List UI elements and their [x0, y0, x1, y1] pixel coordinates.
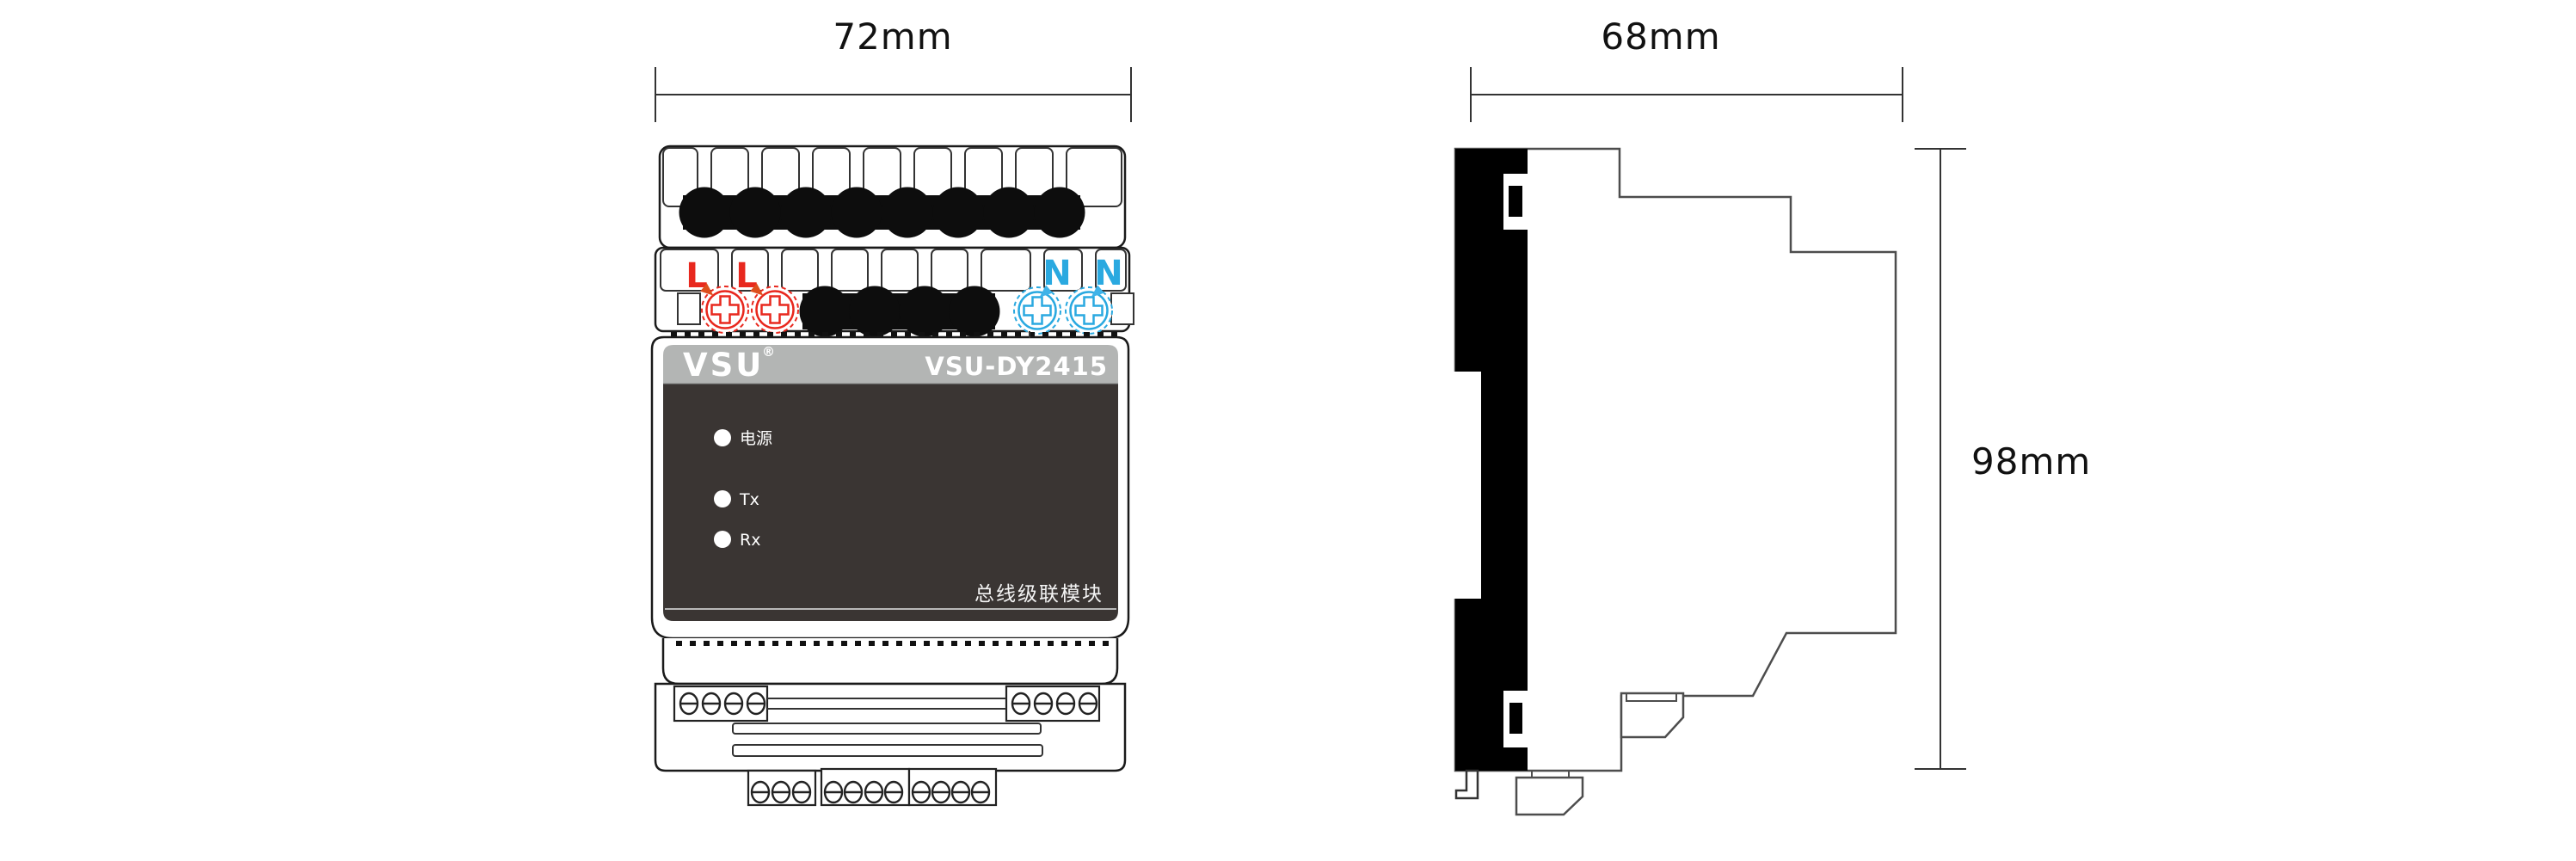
clip-latch-top-icon — [1509, 186, 1522, 217]
terminal-contact — [781, 188, 832, 238]
front-view: 72mm — [652, 15, 1134, 805]
power-led-icon — [714, 429, 731, 446]
side-view: 68mm 98mm — [1450, 15, 2091, 815]
din-rail-notch — [1450, 372, 1481, 599]
terminal-contact — [730, 188, 781, 238]
terminal-contact — [1035, 188, 1085, 238]
front-width-label: 72mm — [833, 15, 952, 58]
panel-caption: 总线级联模块 — [974, 583, 1104, 606]
slot-screw-icon — [793, 782, 810, 803]
power-led-label: 电源 — [740, 429, 772, 448]
clip-latch-bottom-icon — [1509, 703, 1522, 734]
slot-screw-icon — [772, 782, 790, 803]
side-height-label: 98mm — [1971, 440, 2091, 483]
tx-led-label: Tx — [739, 490, 759, 509]
wire-clamp-left — [678, 293, 700, 324]
base-slot-bar — [733, 745, 1042, 756]
terminal-tooth — [882, 249, 918, 291]
terminal-tooth — [782, 249, 818, 291]
slot-screw-icon — [865, 782, 882, 803]
slot-screw-icon — [1057, 693, 1074, 714]
side-bus-terminal — [1621, 693, 1683, 737]
terminal-contact — [984, 188, 1035, 238]
model-number: VSU-DY2415 — [925, 352, 1108, 381]
neutral-screw-terminal-1 — [1014, 287, 1061, 334]
wire-clamp-right — [1111, 293, 1134, 324]
base-slot-bar — [733, 723, 1041, 734]
side-depth-label: 68mm — [1601, 15, 1720, 58]
registered-mark: ® — [762, 344, 775, 360]
terminal-contact — [900, 286, 950, 337]
side-depth-dimension: 68mm — [1471, 15, 1903, 122]
slot-screw-icon — [1035, 693, 1052, 714]
front-power-terminal-row: L L N N — [655, 248, 1134, 337]
slot-screw-icon — [845, 782, 862, 803]
slot-screw-icon — [752, 782, 769, 803]
terminal-contact — [850, 286, 901, 337]
slot-screw-icon — [825, 782, 842, 803]
neutral-screw-terminal-2 — [1066, 287, 1112, 334]
front-lower-band — [663, 638, 1117, 684]
side-bottom-terminal — [1516, 771, 1583, 815]
rx-led-label: Rx — [740, 531, 760, 550]
slot-screw-icon — [932, 782, 950, 803]
slot-screw-icon — [680, 693, 698, 714]
slot-screw-icon — [972, 782, 989, 803]
slot-screw-icon — [913, 782, 930, 803]
front-width-dimension: 72mm — [655, 15, 1131, 122]
middle-black-terminals — [800, 286, 1000, 337]
drawing-canvas: 72mm — [0, 0, 2576, 861]
slot-screw-icon — [747, 693, 765, 714]
slot-screw-icon — [885, 782, 902, 803]
terminal-tooth — [832, 249, 868, 291]
front-case: VSU ® VSU-DY2415 电源 Tx Rx 总线级联模块 — [652, 331, 1128, 638]
bottom-terminal-blocks — [748, 769, 996, 805]
din-release-hook — [1456, 771, 1478, 798]
terminal-contact — [800, 286, 851, 337]
terminal-contact — [679, 188, 730, 238]
terminal-body — [1516, 778, 1583, 815]
terminal-body — [1621, 693, 1683, 737]
slot-screw-icon — [952, 782, 969, 803]
slot-screw-icon — [1079, 693, 1097, 714]
rx-led-icon — [714, 531, 731, 548]
front-base — [655, 684, 1125, 805]
terminal-tooth — [981, 249, 1030, 291]
side-height-dimension: 98mm — [1915, 149, 2091, 769]
brand-logo: VSU — [683, 347, 764, 384]
terminal-contact — [882, 188, 933, 238]
dimension-drawing: 72mm — [0, 0, 2576, 861]
din-mount-plate — [1450, 149, 1529, 771]
terminal-contact — [950, 286, 1000, 337]
terminal-contact — [933, 188, 984, 238]
terminal-tooth — [931, 249, 968, 291]
terminal-contact — [832, 188, 882, 238]
slot-screw-icon — [725, 693, 742, 714]
front-top-terminal-row — [660, 146, 1125, 248]
slot-screw-icon — [703, 693, 720, 714]
tx-led-icon — [714, 490, 731, 507]
slot-screw-icon — [1012, 693, 1030, 714]
